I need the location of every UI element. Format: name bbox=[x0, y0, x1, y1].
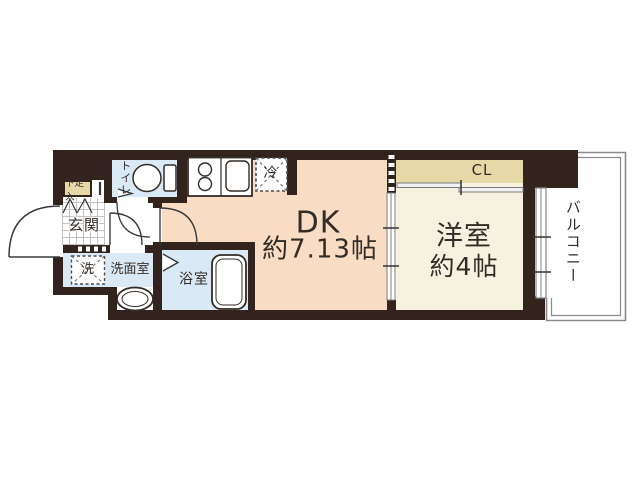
bedroom-label: 洋室 bbox=[436, 223, 492, 251]
sliding-door-icon bbox=[383, 193, 399, 300]
washer-label: 洗 bbox=[81, 263, 95, 277]
washroom-label: 洗面室 bbox=[110, 263, 149, 277]
bathroom-doorfold-icon bbox=[163, 254, 178, 271]
bathtub-icon bbox=[212, 255, 246, 309]
kitchen-counter bbox=[188, 158, 252, 197]
closet-sliding-door-icon bbox=[397, 180, 523, 195]
kitchen-sink-icon bbox=[226, 161, 249, 191]
floorplan-canvas: 下足入 DK 約7.13帖 洋室 約4帖 バルコニー CL トイレ 玄関 洗 洗… bbox=[0, 0, 640, 480]
dk-door-arc bbox=[160, 208, 197, 245]
washbasin-icon bbox=[117, 288, 153, 311]
toilet-door-arc bbox=[117, 202, 150, 237]
entrance-door-arc bbox=[9, 206, 60, 257]
shoe-cabinet-label: 下足入 bbox=[65, 175, 90, 203]
toilet-label: トイレ bbox=[119, 160, 131, 196]
balcony-label: バルコニー bbox=[564, 200, 580, 285]
entrance-label: 玄関 bbox=[68, 218, 100, 234]
balcony-window-icon bbox=[531, 188, 551, 298]
toilet-icon bbox=[133, 165, 176, 192]
bedroom-size-label: 約4帖 bbox=[430, 254, 499, 280]
refrigerator-label: 冷 bbox=[264, 167, 279, 182]
shoe-cabinet-box: 下足入 bbox=[63, 180, 92, 197]
balcony-railing bbox=[547, 153, 626, 321]
bathroom-label: 浴室 bbox=[179, 273, 209, 288]
closet-label: CL bbox=[472, 163, 493, 179]
dk-size-label: 約7.13帖 bbox=[262, 236, 378, 263]
